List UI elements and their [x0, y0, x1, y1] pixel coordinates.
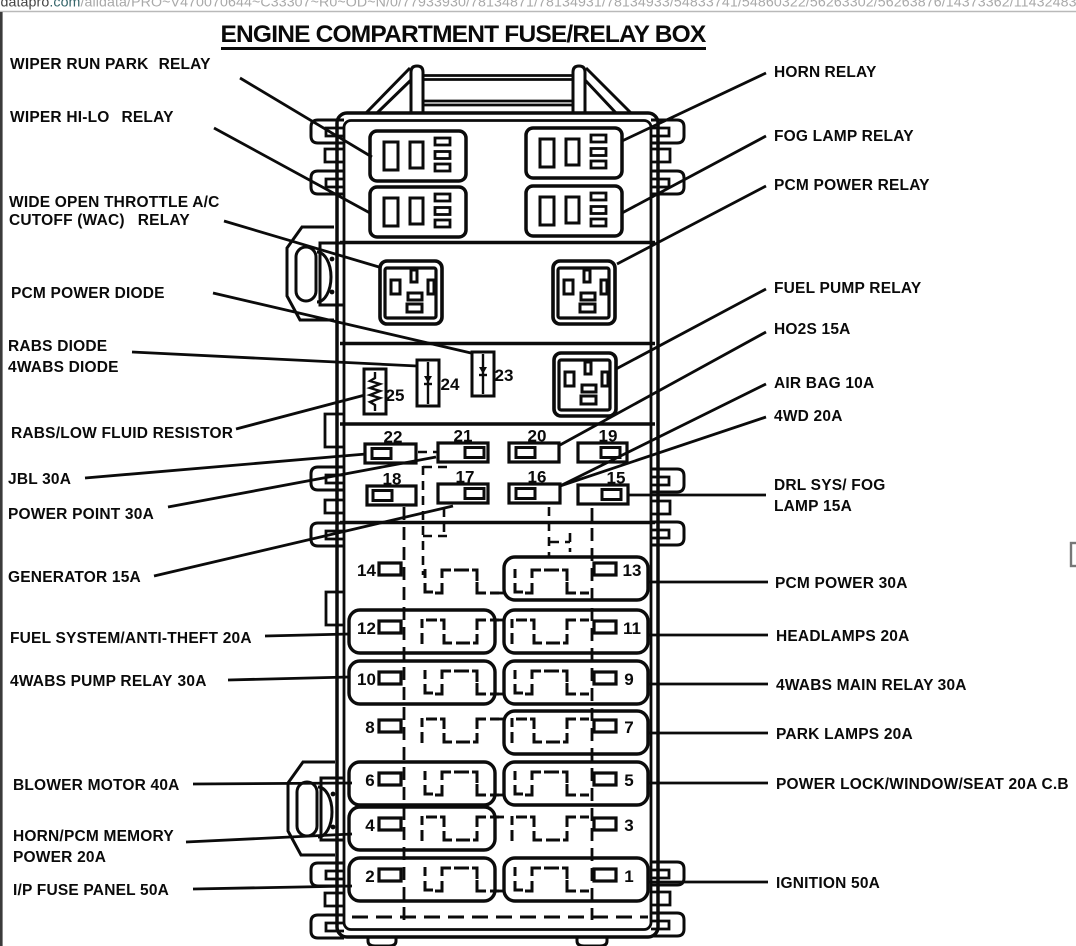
- svg-text:23: 23: [495, 366, 514, 385]
- svg-text:FOG LAMP RELAY: FOG LAMP RELAY: [774, 128, 914, 145]
- svg-text:11: 11: [623, 619, 641, 638]
- svg-text:2: 2: [365, 867, 374, 886]
- svg-text:IGNITION 50A: IGNITION 50A: [776, 875, 880, 892]
- svg-text:16: 16: [528, 468, 547, 487]
- svg-text:POWER 20A: POWER 20A: [13, 849, 106, 866]
- svg-text:4WABS MAIN RELAY30A: 4WABS MAIN RELAY30A: [776, 677, 967, 694]
- svg-text:10: 10: [357, 670, 376, 689]
- svg-text:4WABS PUMP RELAY30A: 4WABS PUMP RELAY30A: [10, 673, 207, 690]
- svg-text:15: 15: [607, 469, 626, 488]
- svg-text:19: 19: [599, 427, 618, 446]
- svg-text:CUTOFF (WAC)RELAY: CUTOFF (WAC)RELAY: [9, 212, 190, 229]
- svg-text:1: 1: [624, 867, 633, 886]
- svg-text:14: 14: [357, 561, 376, 580]
- svg-text:JBL 30A: JBL 30A: [8, 471, 71, 488]
- svg-text:PCM POWER RELAY: PCM POWER RELAY: [774, 177, 930, 194]
- svg-text:FUEL SYSTEM/ANTI-THEFT 20A: FUEL SYSTEM/ANTI-THEFT 20A: [10, 630, 252, 647]
- svg-text:5: 5: [624, 771, 633, 790]
- svg-text:lldatapro.com/alldata/PRO~V470: lldatapro.com/alldata/PRO~V470070644~C33…: [0, 0, 1076, 11]
- svg-text:8: 8: [365, 718, 374, 737]
- svg-text:WIPER HI-LORELAY: WIPER HI-LORELAY: [10, 109, 174, 126]
- svg-text:PCM POWER DIODE: PCM POWER DIODE: [11, 285, 165, 302]
- svg-text:BLOWER MOTOR 40A: BLOWER MOTOR 40A: [13, 777, 180, 794]
- svg-text:4WABS DIODE: 4WABS DIODE: [8, 359, 119, 376]
- svg-text:12: 12: [357, 619, 376, 638]
- svg-text:9: 9: [624, 670, 633, 689]
- svg-text:6: 6: [365, 771, 374, 790]
- svg-text:GENERATOR 15A: GENERATOR 15A: [8, 569, 141, 586]
- svg-text:RABS/LOW FLUID RESISTOR: RABS/LOW FLUID RESISTOR: [11, 425, 233, 442]
- svg-text:25: 25: [386, 386, 405, 405]
- svg-text:DRL SYS/ FOG: DRL SYS/ FOG: [774, 477, 886, 494]
- svg-text:HEADLAMPS 20A: HEADLAMPS 20A: [776, 628, 910, 645]
- svg-text:24: 24: [441, 375, 460, 394]
- svg-text:4WD 20A: 4WD 20A: [774, 408, 843, 425]
- svg-text:WIPER RUN PARKRELAY: WIPER RUN PARKRELAY: [10, 56, 211, 73]
- svg-text:17: 17: [456, 468, 475, 487]
- svg-text:I/P FUSE PANEL 50A: I/P FUSE PANEL 50A: [13, 882, 169, 899]
- svg-text:21: 21: [454, 427, 473, 446]
- svg-text:7: 7: [624, 718, 633, 737]
- svg-text:POWER POINT 30A: POWER POINT 30A: [8, 506, 154, 523]
- svg-text:4: 4: [365, 816, 375, 835]
- svg-text:AIR BAG 10A: AIR BAG 10A: [774, 375, 874, 392]
- svg-text:13: 13: [623, 561, 642, 580]
- svg-text:3: 3: [624, 816, 633, 835]
- svg-text:FUEL PUMP RELAY: FUEL PUMP RELAY: [774, 280, 922, 297]
- svg-text:HO2S 15A: HO2S 15A: [774, 321, 851, 338]
- svg-text:22: 22: [384, 428, 403, 447]
- svg-text:POWER LOCK/WINDOW/SEAT 20A C.B: POWER LOCK/WINDOW/SEAT 20A C.B: [776, 776, 1069, 793]
- svg-text:HORNRELAY: HORNRELAY: [774, 64, 877, 81]
- svg-text:18: 18: [383, 470, 402, 489]
- svg-text:RABS DIODE: RABS DIODE: [8, 338, 107, 355]
- svg-text:PARK LAMPS 20A: PARK LAMPS 20A: [776, 726, 913, 743]
- svg-text:WIDE OPEN THROTTLE A/C: WIDE OPEN THROTTLE A/C: [9, 194, 220, 211]
- svg-text:HORN/PCM MEMORY: HORN/PCM MEMORY: [13, 828, 174, 845]
- svg-text:LAMP 15A: LAMP 15A: [774, 498, 852, 515]
- svg-text:PCM POWER 30A: PCM POWER 30A: [775, 575, 908, 592]
- svg-text:20: 20: [528, 427, 547, 446]
- svg-text:ENGINE COMPARTMENT FUSE/RELAY: ENGINE COMPARTMENT FUSE/RELAY BOX: [221, 21, 707, 48]
